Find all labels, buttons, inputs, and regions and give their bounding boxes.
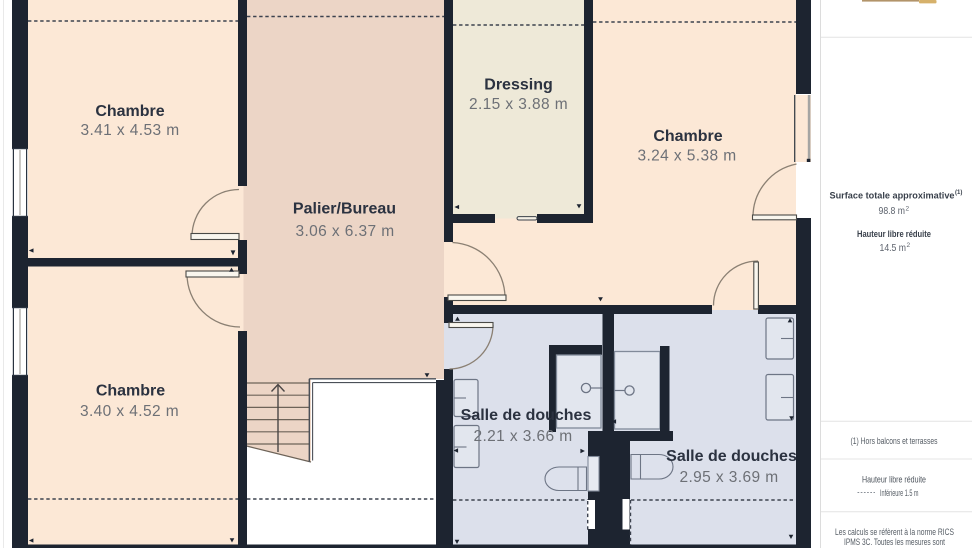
svg-text:Dressing: Dressing [484, 77, 552, 94]
svg-text:Palier/Bureau: Palier/Bureau [293, 201, 396, 218]
svg-text:98.8 m: 98.8 m [879, 206, 906, 217]
svg-text:Chambre: Chambre [96, 383, 165, 400]
svg-text:2: 2 [907, 242, 911, 249]
svg-text:Salle de douches: Salle de douches [461, 407, 592, 424]
svg-text:Inférieure 1.5 m: Inférieure 1.5 m [880, 488, 919, 498]
svg-text:Chambre: Chambre [653, 128, 722, 145]
svg-text:Hauteur libre réduite: Hauteur libre réduite [862, 474, 926, 484]
svg-text:3.40 x 4.52 m: 3.40 x 4.52 m [80, 403, 179, 420]
svg-text:2: 2 [906, 206, 910, 213]
svg-text:(1) Hors balcons et terrasses: (1) Hors balcons et terrasses [851, 436, 938, 446]
svg-text:2.15 x 3.88 m: 2.15 x 3.88 m [469, 96, 568, 113]
svg-text:Chambre: Chambre [95, 103, 164, 120]
svg-text:14.5 m: 14.5 m [880, 243, 907, 254]
svg-text:IPMS 3C. Toutes les mesures so: IPMS 3C. Toutes les mesures sont [844, 537, 945, 547]
svg-text:2.21 x 3.66 m: 2.21 x 3.66 m [473, 428, 572, 445]
svg-text:2.95 x 3.69 m: 2.95 x 3.69 m [679, 469, 778, 486]
svg-text:Surface totale approximative: Surface totale approximative [830, 190, 955, 201]
svg-text:(1): (1) [955, 190, 962, 196]
svg-text:3.41 x 4.53 m: 3.41 x 4.53 m [80, 122, 179, 139]
svg-text:Hauteur libre réduite: Hauteur libre réduite [857, 229, 931, 240]
svg-text:Salle de douches: Salle de douches [666, 448, 797, 465]
svg-text:Les calculs se réfèrent à la n: Les calculs se réfèrent à la norme RICS [835, 527, 954, 537]
svg-text:3.24 x 5.38 m: 3.24 x 5.38 m [637, 148, 736, 165]
svg-text:3.06 x 6.37 m: 3.06 x 6.37 m [295, 223, 394, 240]
